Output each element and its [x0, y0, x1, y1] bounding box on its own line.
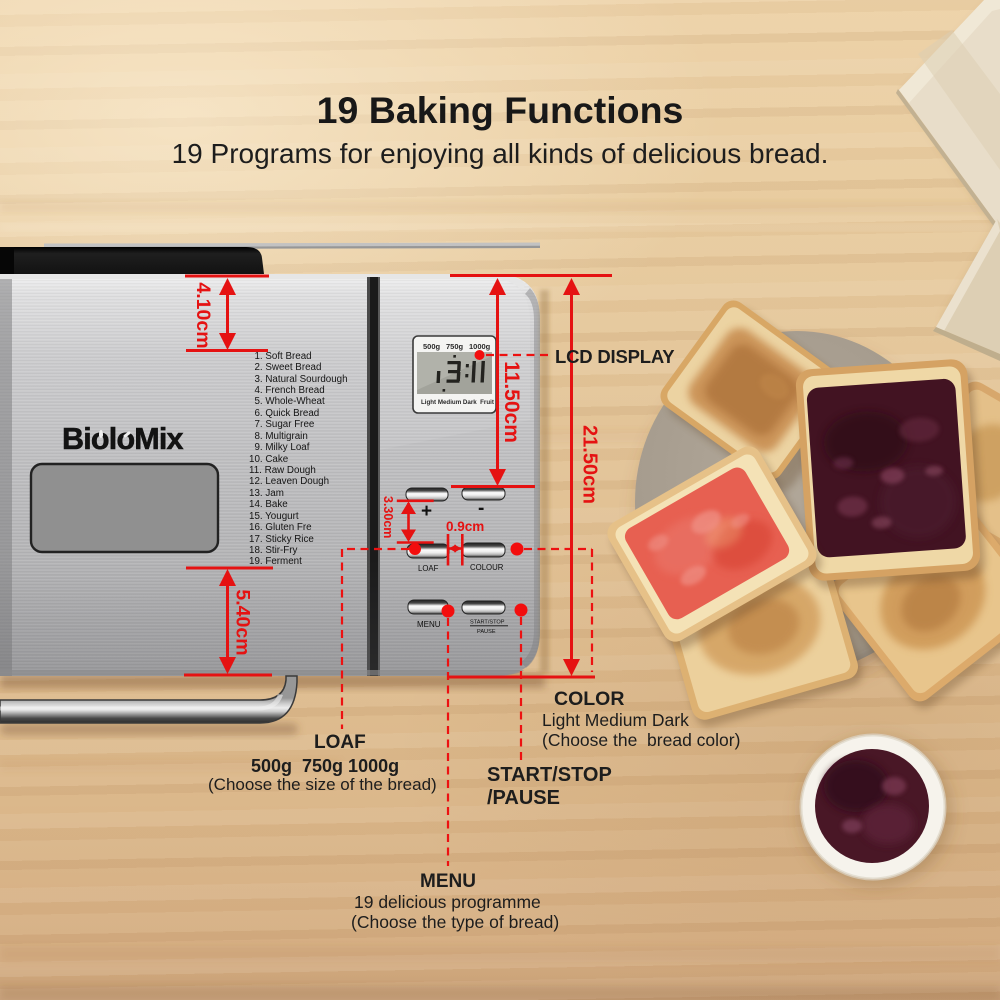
svg-text:PAUSE: PAUSE — [477, 629, 496, 635]
svg-text:Light Medium Dark Fruit: Light Medium Dark Fruit — [421, 399, 494, 406]
svg-text:COLOUR: COLOUR — [470, 563, 504, 572]
svg-text:750g: 750g — [446, 342, 464, 351]
svg-text:LOAF: LOAF — [418, 564, 439, 573]
svg-text:1000g: 1000g — [469, 342, 491, 351]
svg-text:-: - — [478, 498, 484, 519]
svg-text:START/STOP: START/STOP — [470, 620, 505, 626]
svg-text:MENU: MENU — [417, 620, 441, 629]
svg-text:500g: 500g — [423, 342, 441, 351]
svg-text:+: + — [421, 501, 432, 522]
